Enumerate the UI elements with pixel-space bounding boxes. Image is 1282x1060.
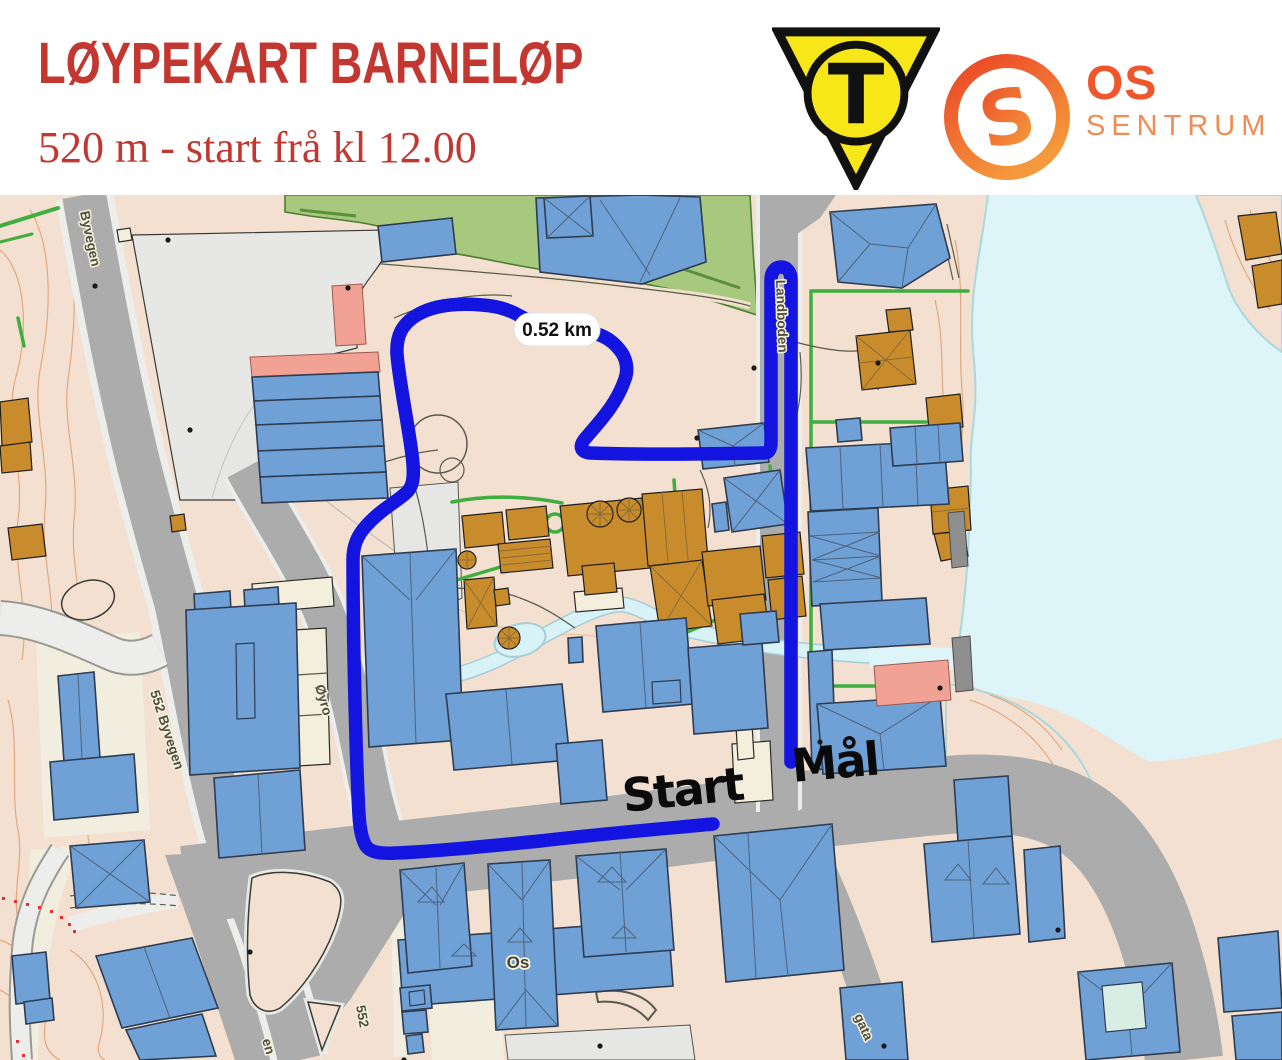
os-s-glyph: S <box>971 68 1043 166</box>
building <box>506 506 549 540</box>
page-subtitle: 520 m - start frå kl 12.00 <box>38 122 477 173</box>
building <box>1252 260 1282 308</box>
building <box>836 418 862 442</box>
page-title: LØYPEKART BARNELØP <box>38 30 583 97</box>
place-label-os: Os <box>507 953 530 972</box>
os-logo-mark: S <box>938 48 1076 186</box>
building <box>582 563 617 595</box>
building <box>378 218 456 262</box>
os-logo-line1: OS <box>1086 60 1271 108</box>
building <box>840 982 908 1060</box>
building <box>556 740 607 804</box>
course-map: Byvegen 552 Byvegen Øyro Landboden 552 g… <box>0 195 1282 1060</box>
os-logo-text: OS SENTRUM <box>1086 60 1271 144</box>
building <box>50 754 138 820</box>
building <box>402 1010 428 1034</box>
building <box>494 588 510 606</box>
building <box>1238 212 1282 260</box>
building <box>642 489 708 566</box>
building <box>890 423 963 466</box>
header: LØYPEKART BARNELØP 520 m - start frå kl … <box>0 0 1282 195</box>
building <box>446 684 570 770</box>
building <box>170 514 186 532</box>
building <box>400 985 432 1011</box>
building <box>8 524 46 560</box>
building <box>260 472 388 503</box>
building <box>24 998 54 1024</box>
distance-badge-text: 0.52 km <box>522 320 592 341</box>
building <box>874 660 951 706</box>
club-logo: T <box>772 22 940 190</box>
building <box>0 398 32 446</box>
building <box>568 637 583 663</box>
finish-label: Mål <box>789 732 880 793</box>
building <box>186 603 300 775</box>
water-area <box>946 195 1282 830</box>
building <box>1102 982 1146 1032</box>
building <box>462 512 505 548</box>
building <box>712 502 729 532</box>
building <box>886 308 913 332</box>
building <box>12 952 50 1004</box>
os-sentrum-logo: S OS SENTRUM <box>938 48 1282 188</box>
building <box>596 618 693 712</box>
distance-badge: 0.52 km <box>514 313 600 346</box>
os-logo-line2: SENTRUM <box>1086 108 1271 144</box>
building <box>1218 931 1282 1012</box>
club-logo-letter: T <box>828 46 885 143</box>
flyer-page: LØYPEKART BARNELØP 520 m - start frå kl … <box>0 0 1282 1060</box>
building <box>740 611 779 645</box>
building <box>117 228 132 242</box>
building <box>332 284 366 346</box>
building <box>924 836 1020 942</box>
building <box>0 442 32 473</box>
building <box>1232 1012 1282 1060</box>
street-label-landboden: Landboden <box>773 280 791 353</box>
building <box>820 598 930 650</box>
building <box>688 642 768 734</box>
building <box>714 824 844 982</box>
building <box>406 1034 424 1054</box>
